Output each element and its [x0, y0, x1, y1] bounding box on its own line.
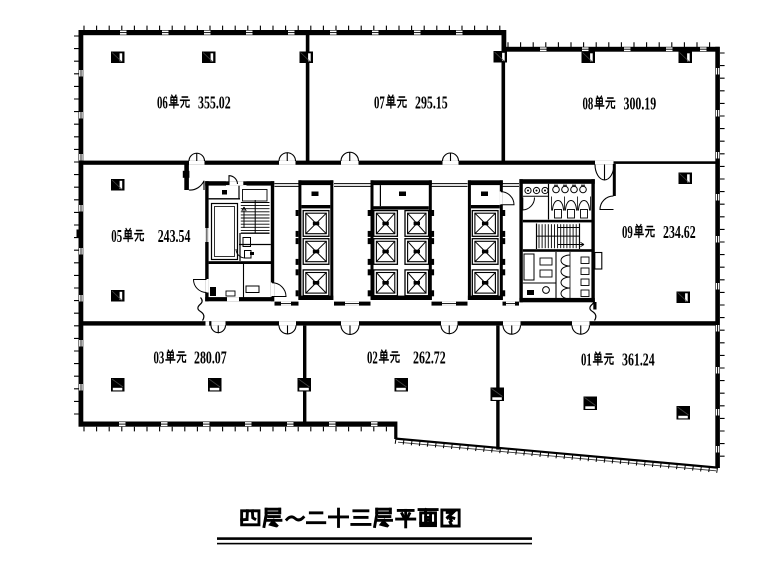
- svg-text:300.19: 300.19: [624, 94, 657, 114]
- svg-text:234.62: 234.62: [663, 222, 696, 242]
- svg-text:295.15: 295.15: [415, 93, 448, 113]
- svg-text:02: 02: [367, 348, 378, 368]
- svg-text:03: 03: [154, 348, 165, 368]
- svg-text:09: 09: [622, 222, 633, 242]
- svg-text:361.24: 361.24: [622, 350, 655, 370]
- svg-text:08: 08: [583, 94, 594, 114]
- svg-text:280.07: 280.07: [194, 348, 227, 368]
- svg-text:355.02: 355.02: [198, 93, 231, 113]
- svg-text:07: 07: [374, 93, 385, 113]
- svg-text:243.54: 243.54: [158, 226, 191, 246]
- svg-text:06: 06: [157, 93, 168, 113]
- svg-text:01: 01: [581, 350, 592, 370]
- svg-text:262.72: 262.72: [413, 348, 446, 368]
- svg-text:05: 05: [111, 226, 122, 246]
